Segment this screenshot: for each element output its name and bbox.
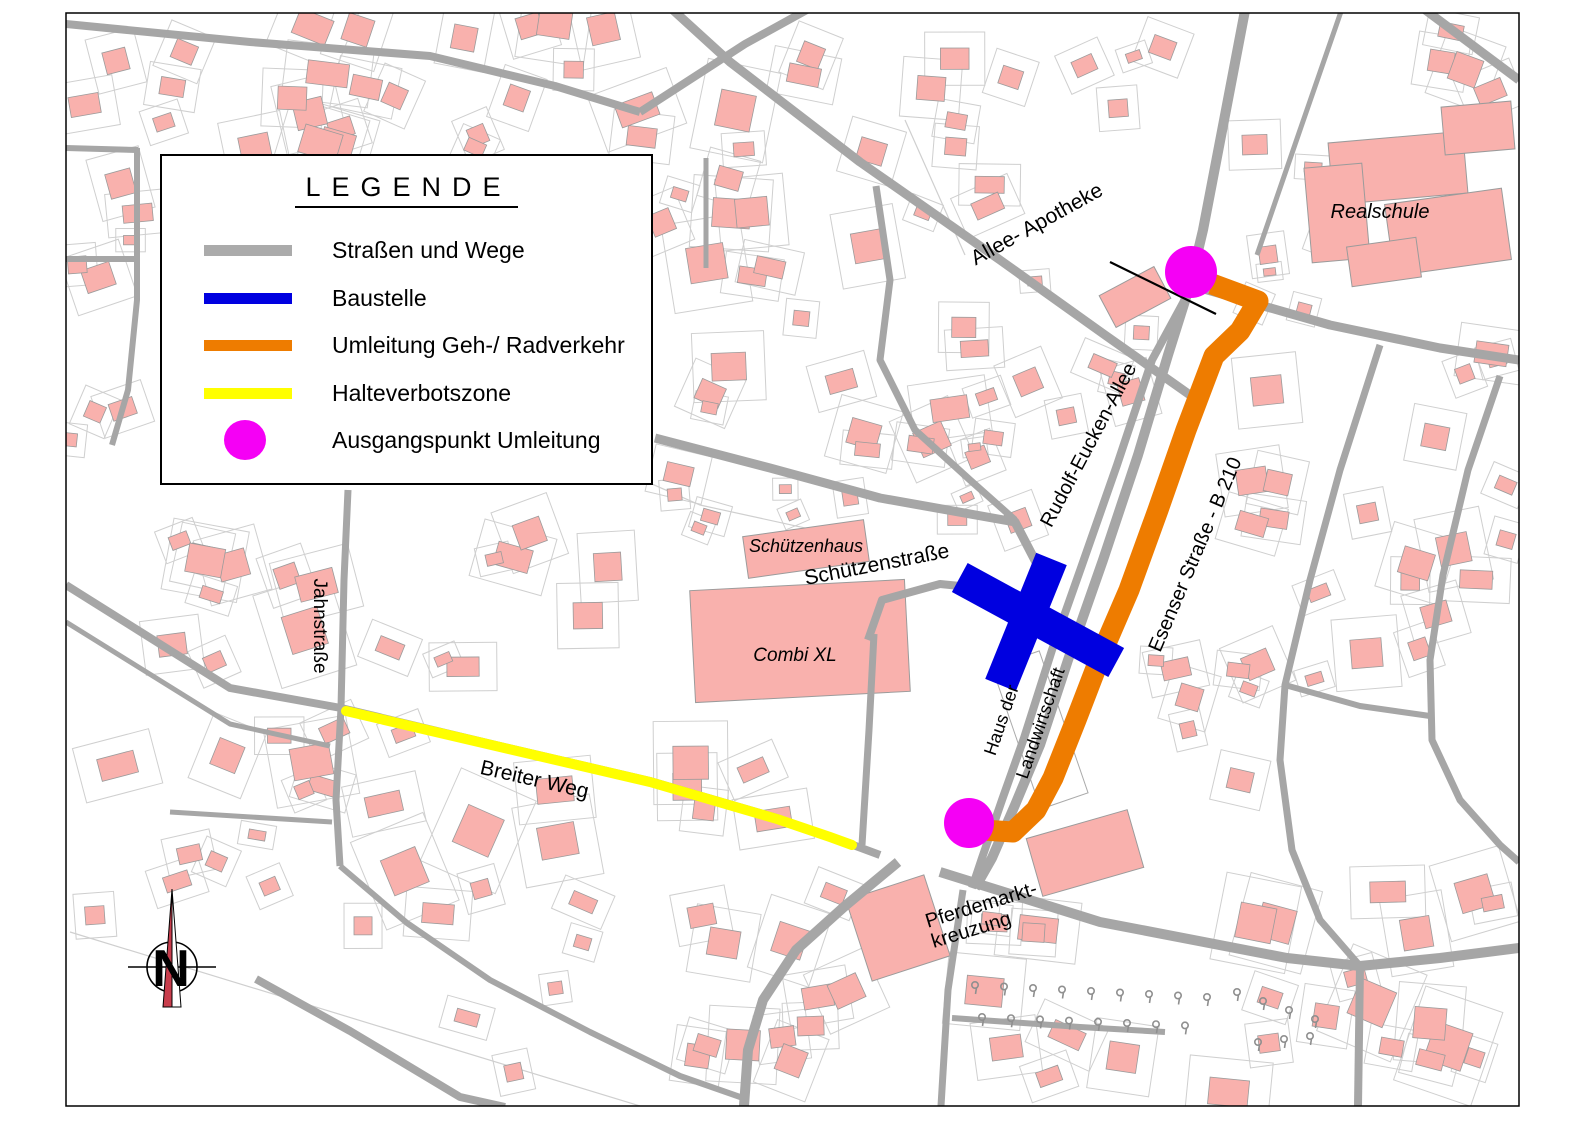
building [85, 906, 106, 925]
building [536, 2, 573, 40]
legend-swatch-baustelle [204, 293, 292, 304]
building [593, 552, 622, 582]
building [1148, 655, 1164, 667]
tree-stem [1063, 992, 1064, 999]
building [1421, 423, 1450, 450]
tree-stem [1311, 1039, 1312, 1046]
legend-label-baustelle: Baustelle [332, 285, 427, 312]
building [797, 1016, 824, 1036]
building [687, 903, 717, 928]
building [854, 442, 880, 458]
building [422, 903, 455, 925]
building [1413, 1006, 1447, 1040]
building [989, 1034, 1023, 1061]
tree-stem [1157, 1027, 1158, 1034]
building [733, 142, 754, 157]
building-large [690, 579, 911, 702]
building [1179, 721, 1197, 739]
building [1250, 375, 1283, 407]
tree-stem [983, 1020, 984, 1027]
building [289, 742, 334, 780]
building [1226, 662, 1250, 679]
building [968, 443, 981, 452]
map-label-jahnstrasse: Jahnstraße [309, 578, 330, 673]
building [930, 395, 970, 423]
legend-item-strassen: Straßen und Wege [204, 234, 525, 266]
building [626, 125, 657, 148]
building [793, 310, 810, 326]
building [916, 75, 946, 101]
building [277, 86, 307, 110]
legend-swatch-halteverbot [204, 388, 292, 399]
tree-stem [1238, 995, 1239, 1002]
building [945, 112, 968, 131]
building [975, 176, 1004, 193]
building [586, 12, 620, 46]
map-label-realschule: Realschule [1331, 201, 1430, 223]
tree-stem [1179, 998, 1180, 1005]
tree-stem [1092, 994, 1093, 1001]
road [1358, 966, 1360, 1106]
map-label-combi-xl: Combi XL [753, 645, 836, 666]
building [960, 340, 989, 358]
legend-title-text: LEGENDE [295, 172, 517, 208]
building [1379, 1037, 1405, 1057]
building [536, 822, 579, 861]
tree-stem [1290, 1013, 1291, 1020]
building-large [1441, 101, 1515, 155]
building [564, 61, 584, 78]
tree-stem [1264, 1004, 1265, 1011]
building [714, 89, 756, 132]
tree-stem [1121, 995, 1122, 1002]
legend: LEGENDE Straßen und Wege Baustelle Umlei… [160, 154, 653, 485]
building [185, 543, 226, 578]
ausgangspunkt-marker [944, 798, 994, 848]
legend-item-halteverbot: Halteverbotszone [204, 377, 511, 409]
building [711, 352, 746, 381]
map-label-schuetzenhaus: Schützenhaus [749, 536, 863, 556]
building [60, 432, 78, 447]
tree-stem [1285, 1042, 1286, 1049]
building [1133, 326, 1149, 340]
building [940, 48, 969, 69]
tree-stem [1034, 991, 1035, 998]
building [1108, 99, 1129, 118]
building [573, 602, 603, 629]
building [1022, 923, 1045, 943]
legend-label-strassen: Straßen und Wege [332, 237, 525, 264]
road [66, 148, 138, 150]
building [1106, 1041, 1140, 1073]
building [667, 488, 682, 501]
tree-stem [1316, 1022, 1317, 1029]
building [983, 430, 1004, 446]
legend-swatch-umleitung [204, 340, 292, 351]
detour-map-page: Allee- ApothekeRealschuleRudolf-Eucken-A… [0, 0, 1587, 1122]
tree-stem [1012, 1021, 1013, 1027]
tree-stem [1099, 1024, 1100, 1031]
legend-label-umleitung: Umleitung Geh-/ Radverkehr [332, 332, 625, 359]
building [306, 60, 350, 88]
ausgangspunkt-marker [1165, 246, 1217, 298]
building [1370, 881, 1406, 903]
building [450, 24, 478, 52]
building [779, 485, 791, 494]
building [1350, 638, 1383, 669]
tree-stem [1005, 989, 1006, 996]
tree-stem [1041, 1022, 1042, 1029]
north-arrow-letter: N [152, 940, 190, 998]
legend-item-baustelle: Baustelle [204, 282, 427, 314]
tree-stem [1208, 1000, 1209, 1007]
building [944, 137, 966, 156]
building [1356, 502, 1378, 524]
building [952, 317, 976, 337]
building [1242, 134, 1268, 155]
legend-item-ausgangspunkt: Ausgangspunkt Umleitung [204, 418, 601, 462]
building [159, 77, 186, 98]
building [706, 927, 741, 959]
building [504, 1062, 524, 1082]
building [673, 746, 709, 780]
building [1263, 268, 1276, 277]
building [1207, 1077, 1249, 1108]
tree-stem [1128, 1026, 1129, 1033]
tree-stem [976, 988, 977, 995]
building [734, 196, 769, 228]
tree-stem [1150, 997, 1151, 1004]
legend-swatch-strassen [204, 245, 292, 256]
legend-label-halteverbot: Halteverbotszone [332, 380, 511, 407]
building [1459, 570, 1492, 589]
legend-swatch-ausgangspunkt [224, 420, 266, 460]
tree-stem [1070, 1023, 1071, 1030]
legend-item-umleitung: Umleitung Geh-/ Radverkehr [204, 329, 625, 361]
building [1235, 902, 1277, 944]
legend-label-ausgangspunkt: Ausgangspunkt Umleitung [332, 427, 601, 454]
building [769, 1026, 796, 1049]
building [1056, 407, 1077, 426]
building [1399, 915, 1434, 951]
building [965, 975, 1005, 1007]
tree-stem [1259, 1045, 1260, 1052]
building [354, 917, 372, 935]
legend-title: LEGENDE [162, 172, 651, 203]
building [548, 981, 564, 995]
tree-stem [1186, 1028, 1187, 1035]
